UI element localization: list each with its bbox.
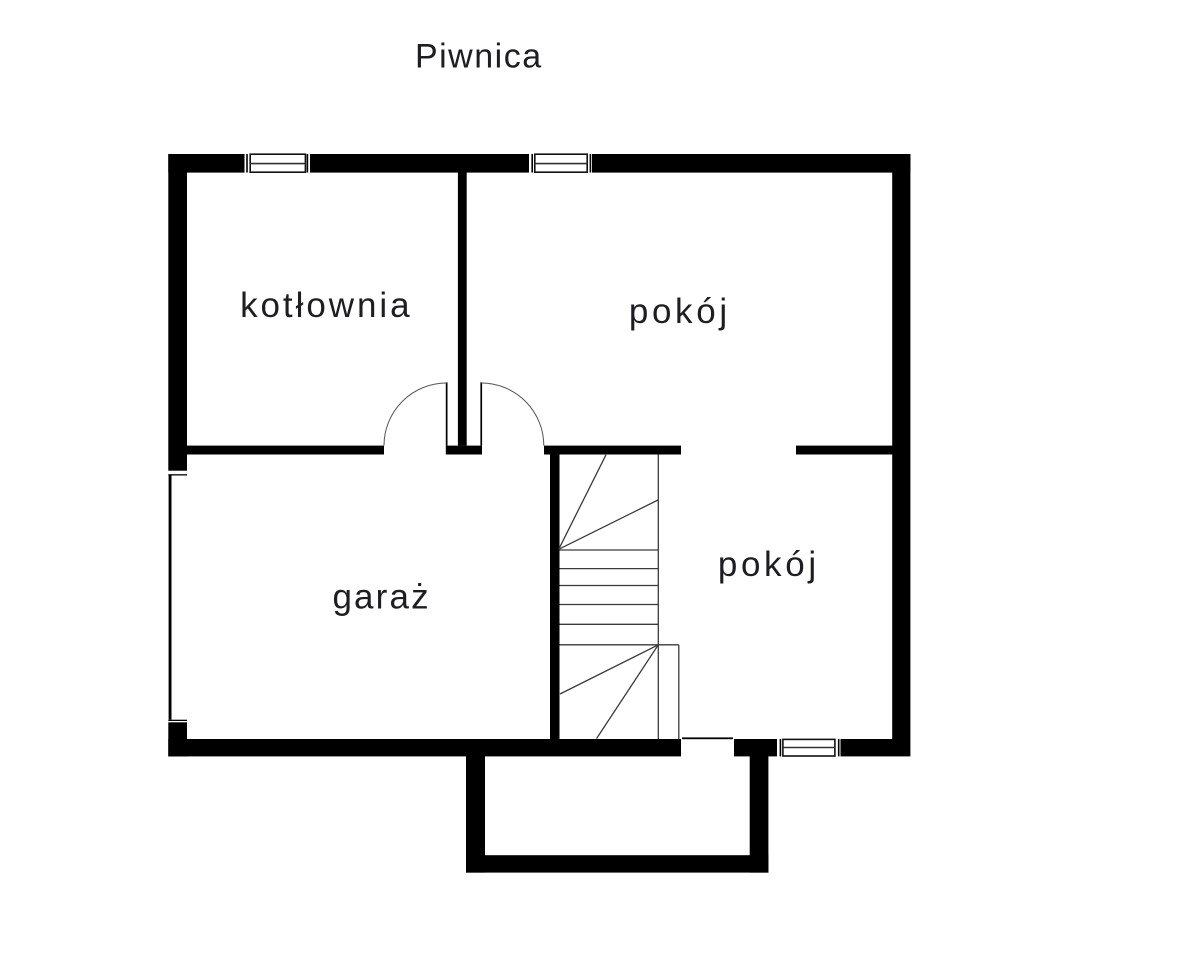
svg-text:pokój: pokój [629, 292, 731, 331]
svg-text:kotłownia: kotłownia [240, 286, 412, 325]
svg-text:Piwnica: Piwnica [415, 38, 543, 76]
svg-text:garaż: garaż [332, 578, 430, 617]
svg-text:pokój: pokój [718, 545, 820, 584]
